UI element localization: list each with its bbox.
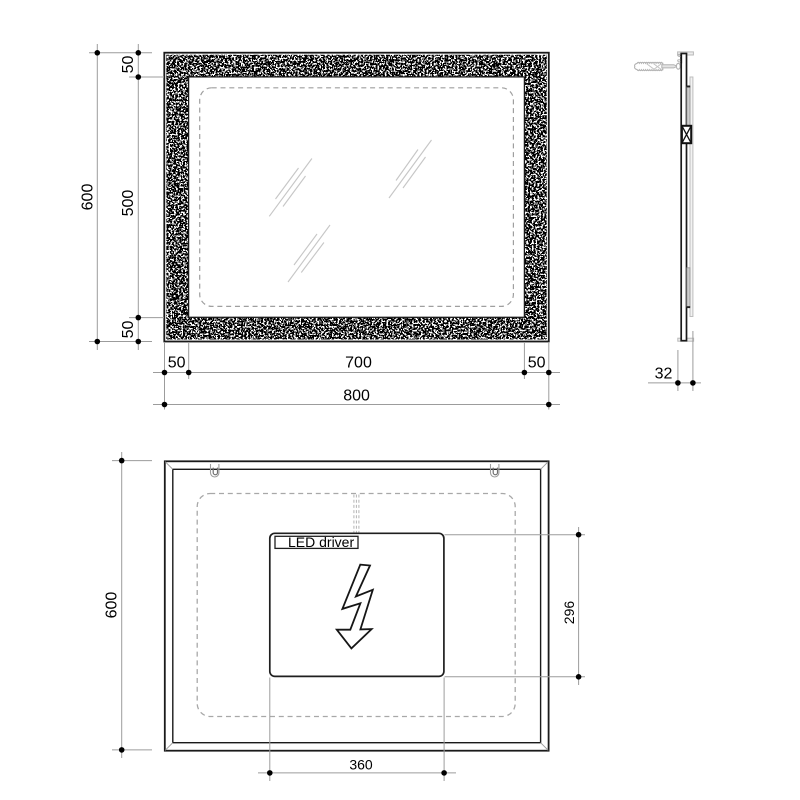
svg-text:50: 50	[120, 321, 137, 339]
svg-text:50: 50	[168, 355, 186, 372]
svg-text:700: 700	[345, 355, 372, 372]
svg-text:32: 32	[655, 366, 673, 383]
svg-text:360: 360	[349, 756, 373, 772]
svg-text:600: 600	[104, 592, 121, 619]
svg-text:LED driver: LED driver	[288, 534, 354, 550]
svg-text:296: 296	[561, 601, 577, 625]
svg-text:500: 500	[120, 190, 137, 217]
svg-text:600: 600	[79, 184, 96, 211]
svg-text:50: 50	[528, 355, 546, 372]
svg-text:50: 50	[120, 56, 137, 74]
svg-text:800: 800	[343, 387, 370, 404]
